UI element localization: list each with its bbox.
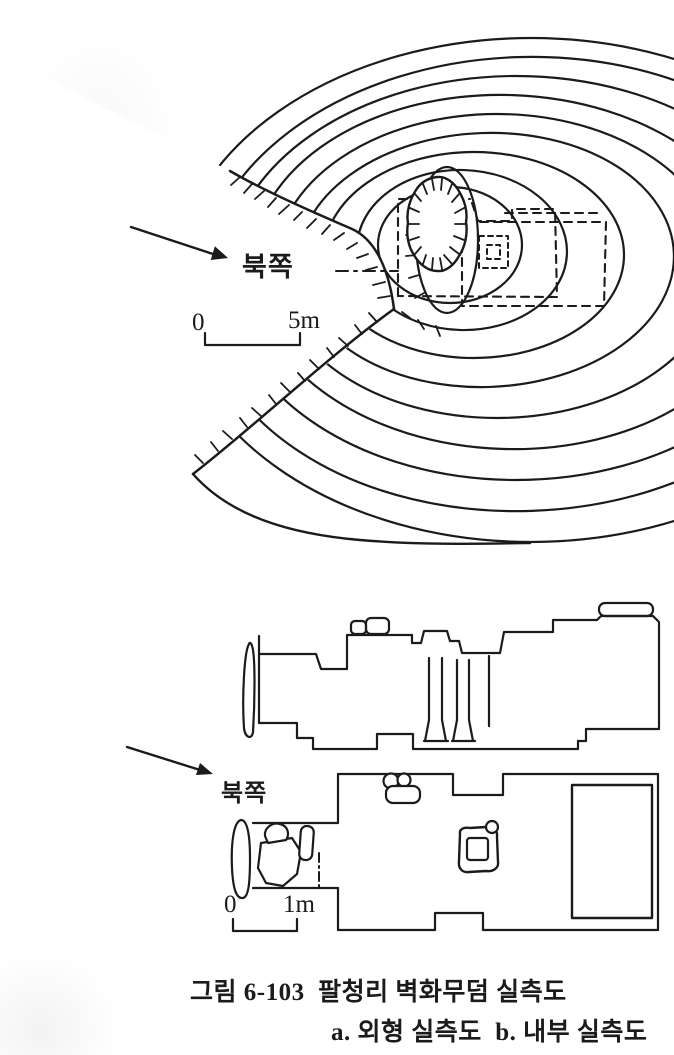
tomb-cross-section [127, 603, 659, 775]
scale-zero-bottom: 0 [224, 891, 237, 919]
north-label-top: 북쪽 [242, 253, 294, 283]
scale-bar-bottom [233, 919, 297, 931]
plan-blocking-stones [258, 824, 314, 886]
central-dashed-square [479, 236, 508, 268]
plan-wall-stones [384, 774, 421, 804]
plan-door-slab [232, 820, 250, 898]
figure-line-art [0, 0, 674, 1055]
plan-altar [459, 821, 498, 872]
section-capstones [351, 603, 653, 634]
scale-zero-top: 0 [192, 309, 205, 337]
scale-end-top: 5m [288, 307, 320, 335]
section-outline [259, 616, 659, 749]
section-pillars [424, 656, 489, 741]
contour-map [0, 38, 674, 545]
plan-platform [572, 785, 652, 918]
north-arrow-bottom [127, 747, 213, 775]
robber-pit [407, 177, 466, 271]
scale-end-bottom: 1m [283, 891, 315, 919]
scanned-document-page: 북쪽 0 5m 북쪽 0 1m 그림 6-103 팔청리 벽화무덤 실측도 a.… [0, 0, 674, 1055]
section-door-slab [243, 643, 254, 737]
figure-caption-line2: a. 외형 실측도 b. 내부 실측도 [331, 1019, 647, 1047]
figure-caption-line1: 그림 6-103 팔청리 벽화무덤 실측도 [190, 979, 567, 1007]
north-label-bottom: 북쪽 [221, 781, 267, 807]
